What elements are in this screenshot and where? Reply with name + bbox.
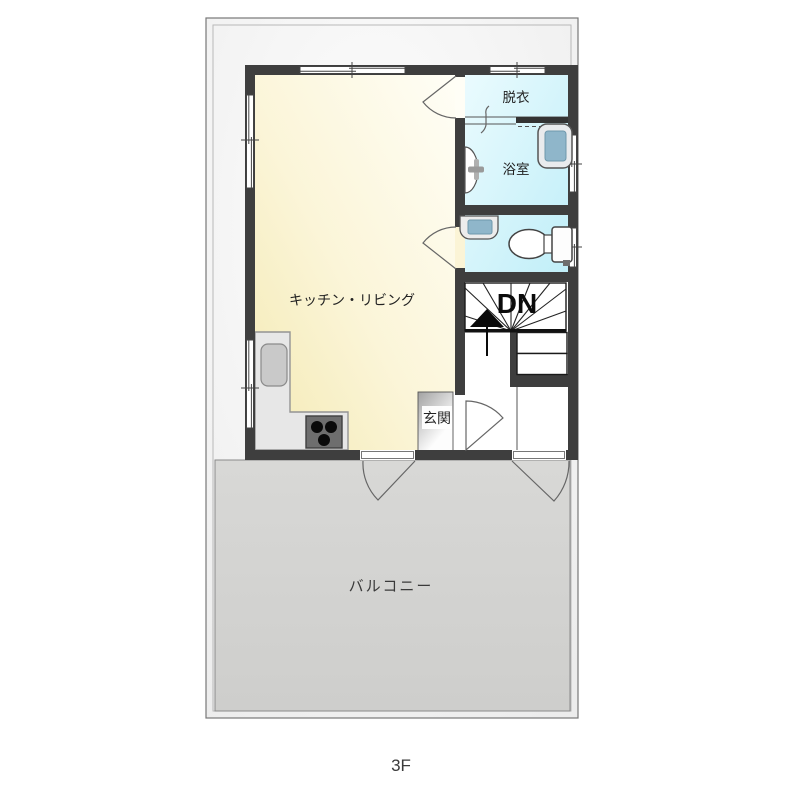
floor-plan-drawing: DN キッチン・リビング 脱衣 浴室 玄関 バルコニー 3F: [0, 0, 800, 800]
kitchen-sink-icon: [261, 344, 287, 386]
wash-basin-icon: [460, 216, 498, 239]
entrance-label-group: 玄関: [422, 406, 452, 429]
floor-plan-page: DN キッチン・リビング 脱衣 浴室 玄関 バルコニー 3F: [0, 0, 800, 800]
stove-icon: [306, 416, 342, 448]
kitchen-living-label: キッチン・リビング: [289, 292, 415, 308]
dressing-room-label: 脱衣: [503, 90, 531, 105]
hall-strip-floor: [453, 392, 467, 450]
entrance-label: 玄関: [423, 410, 451, 426]
bathtub-icon: [538, 124, 572, 168]
floor-label: 3F: [391, 756, 411, 775]
stairs-direction-label: DN: [497, 288, 537, 319]
balcony-label: バルコニー: [349, 578, 434, 595]
bathroom-label: 浴室: [503, 161, 530, 177]
